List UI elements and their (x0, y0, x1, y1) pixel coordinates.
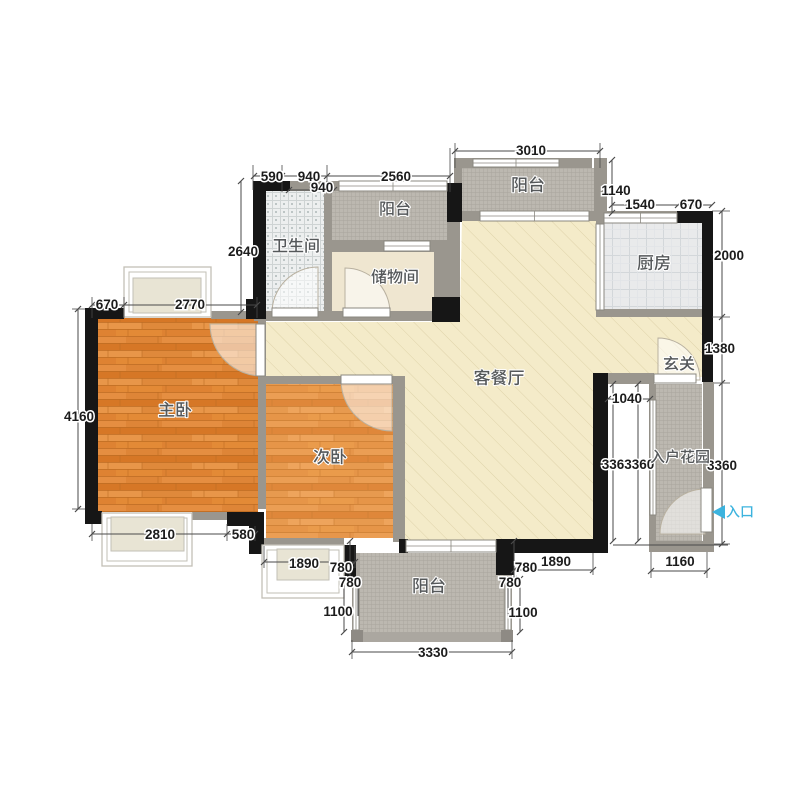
svg-text:780: 780 (339, 575, 362, 590)
svg-text:3010: 3010 (516, 143, 546, 158)
svg-text:1040: 1040 (612, 391, 642, 406)
svg-text:590: 590 (261, 169, 284, 184)
svg-text:1160: 1160 (665, 554, 694, 569)
svg-text:780: 780 (499, 575, 522, 590)
svg-text:3360: 3360 (707, 458, 737, 473)
svg-text:2810: 2810 (145, 527, 175, 542)
svg-text:940: 940 (311, 180, 334, 195)
svg-text:670: 670 (96, 297, 119, 312)
svg-text:1100: 1100 (323, 604, 352, 619)
svg-text:1380: 1380 (705, 341, 735, 356)
svg-text:3330: 3330 (418, 645, 448, 660)
svg-text:580: 580 (232, 527, 255, 542)
svg-text:2000: 2000 (714, 248, 744, 263)
svg-text:2560: 2560 (381, 169, 411, 184)
svg-text:1890: 1890 (541, 554, 571, 569)
svg-text:2770: 2770 (175, 297, 205, 312)
svg-text:780: 780 (515, 560, 538, 575)
svg-text:1890: 1890 (289, 556, 319, 571)
svg-text:1100: 1100 (508, 605, 537, 620)
svg-text:3363360: 3363360 (602, 457, 655, 472)
svg-text:2640: 2640 (228, 244, 258, 259)
svg-text:780: 780 (330, 560, 353, 575)
svg-text:670: 670 (680, 197, 703, 212)
svg-text:1140: 1140 (601, 183, 630, 198)
svg-text:4160: 4160 (64, 409, 94, 424)
svg-text:1540: 1540 (625, 197, 655, 212)
